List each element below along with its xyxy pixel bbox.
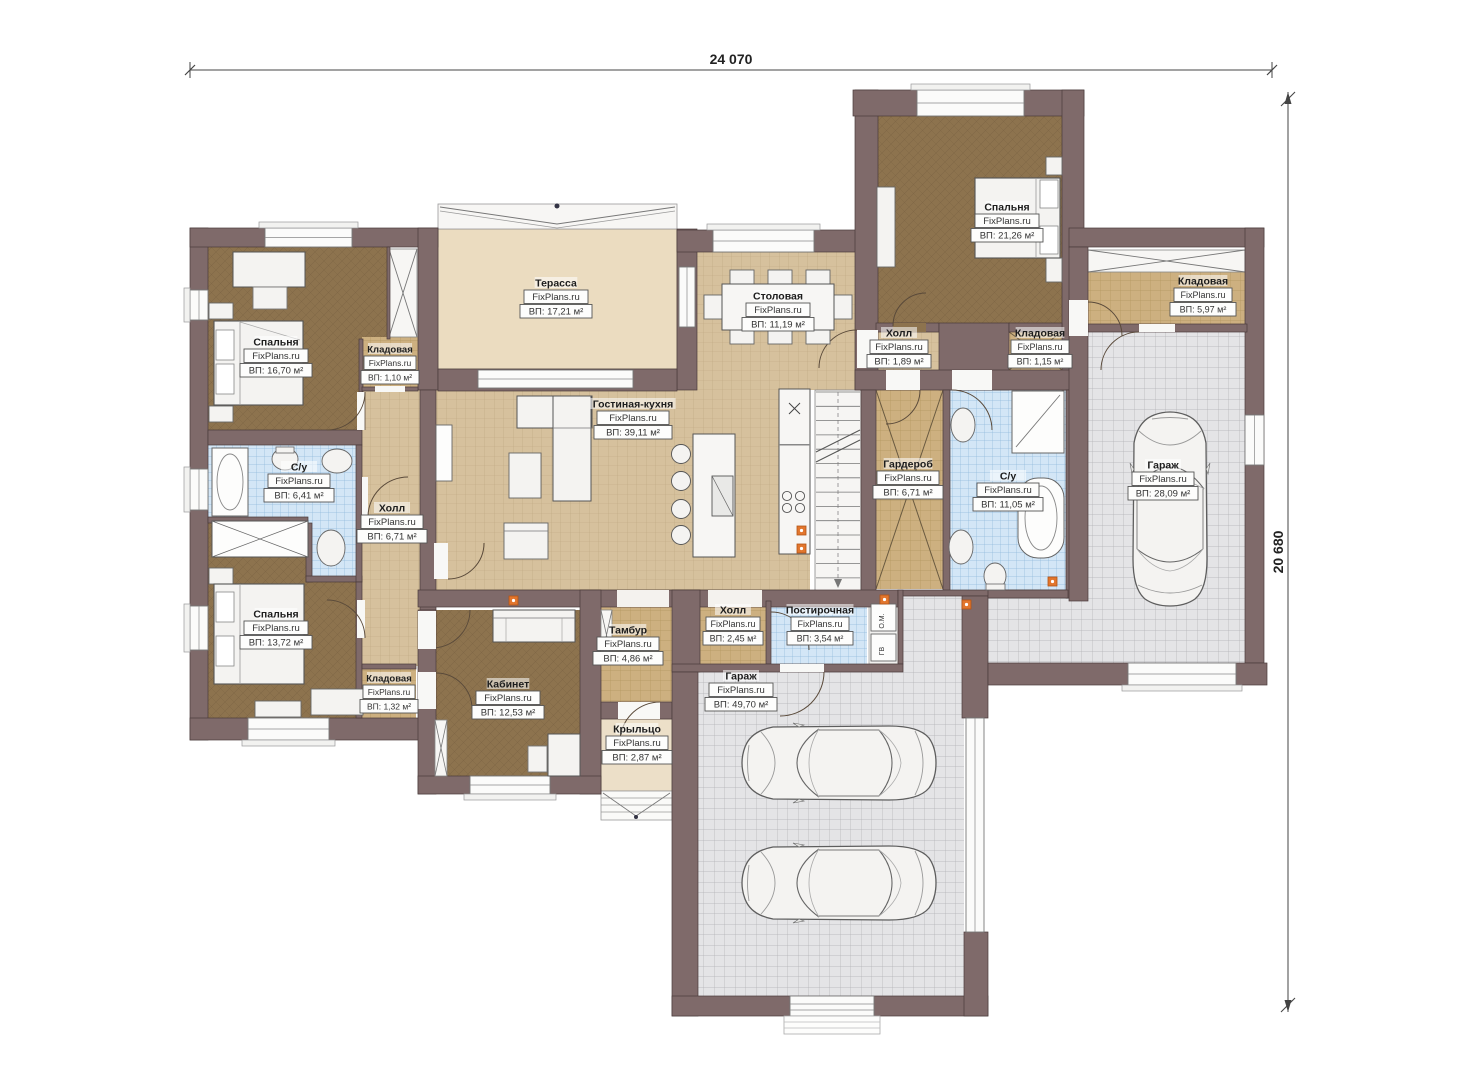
- svg-text:20 680: 20 680: [1270, 530, 1286, 573]
- svg-text:Тамбур: Тамбур: [609, 625, 647, 637]
- svg-text:Крыльцо: Крыльцо: [613, 724, 661, 736]
- svg-text:Холл: Холл: [379, 503, 405, 515]
- svg-text:ВП: 1,10 м²: ВП: 1,10 м²: [368, 373, 412, 383]
- svg-text:FixPlans.ru: FixPlans.ru: [983, 216, 1031, 227]
- svg-text:FixPlans.ru: FixPlans.ru: [710, 619, 755, 629]
- svg-text:Спальня: Спальня: [253, 609, 298, 621]
- svg-text:Кладовая: Кладовая: [367, 345, 413, 356]
- svg-text:С/у: С/у: [1000, 471, 1017, 483]
- svg-text:ВП: 5,97 м²: ВП: 5,97 м²: [1180, 305, 1227, 315]
- svg-text:ВП: 39,11 м²: ВП: 39,11 м²: [606, 428, 660, 439]
- svg-text:FixPlans.ru: FixPlans.ru: [275, 476, 323, 487]
- svg-text:FixPlans.ru: FixPlans.ru: [532, 292, 580, 303]
- svg-text:Холл: Холл: [886, 328, 912, 340]
- svg-text:FixPlans.ru: FixPlans.ru: [484, 693, 532, 704]
- svg-text:ВП: 6,71 м²: ВП: 6,71 м²: [367, 532, 416, 543]
- svg-text:ВП: 1,32 м²: ВП: 1,32 м²: [367, 702, 411, 712]
- svg-text:ВП: 2,45 м²: ВП: 2,45 м²: [710, 634, 757, 644]
- svg-text:Спальня: Спальня: [984, 202, 1029, 214]
- svg-text:ВП: 6,71 м²: ВП: 6,71 м²: [883, 488, 932, 499]
- svg-text:Гараж: Гараж: [725, 671, 757, 683]
- svg-text:Кладовая: Кладовая: [1015, 328, 1065, 340]
- svg-text:ВП: 13,72 м²: ВП: 13,72 м²: [249, 638, 304, 649]
- svg-text:ВП: 1,89 м²: ВП: 1,89 м²: [874, 357, 923, 368]
- svg-text:ВП: 28,09 м²: ВП: 28,09 м²: [1136, 489, 1191, 500]
- svg-text:FixPlans.ru: FixPlans.ru: [1017, 342, 1062, 352]
- svg-text:ГВ: ГВ: [879, 646, 886, 655]
- svg-text:Столовая: Столовая: [753, 291, 803, 303]
- svg-text:FixPlans.ru: FixPlans.ru: [717, 685, 765, 696]
- svg-text:Постирочная: Постирочная: [786, 605, 854, 617]
- svg-text:Гостиная-кухня: Гостиная-кухня: [593, 399, 673, 411]
- svg-text:FixPlans.ru: FixPlans.ru: [252, 623, 300, 634]
- svg-text:ВП: 4,86 м²: ВП: 4,86 м²: [603, 654, 652, 665]
- svg-text:Кладовая: Кладовая: [366, 674, 412, 685]
- svg-text:ВП: 17,21 м²: ВП: 17,21 м²: [529, 307, 584, 318]
- svg-text:FixPlans.ru: FixPlans.ru: [368, 517, 416, 528]
- svg-text:FixPlans.ru: FixPlans.ru: [875, 342, 923, 353]
- svg-text:ВП: 1,15 м²: ВП: 1,15 м²: [1017, 357, 1064, 367]
- svg-text:Гараж: Гараж: [1147, 460, 1179, 472]
- svg-text:FixPlans.ru: FixPlans.ru: [604, 639, 652, 650]
- svg-text:ВП: 49,70 м²: ВП: 49,70 м²: [714, 700, 769, 711]
- svg-text:С/у: С/у: [291, 462, 308, 474]
- svg-text:FixPlans.ru: FixPlans.ru: [884, 473, 932, 484]
- svg-text:FixPlans.ru: FixPlans.ru: [1180, 290, 1225, 300]
- svg-text:Гардероб: Гардероб: [883, 459, 933, 471]
- svg-text:FixPlans.ru: FixPlans.ru: [613, 738, 661, 749]
- svg-text:ВП: 16,70 м²: ВП: 16,70 м²: [249, 366, 304, 377]
- svg-text:FixPlans.ru: FixPlans.ru: [368, 687, 411, 697]
- svg-text:Холл: Холл: [720, 605, 746, 617]
- svg-text:ВП: 11,19 м²: ВП: 11,19 м²: [751, 320, 805, 331]
- svg-text:FixPlans.ru: FixPlans.ru: [369, 358, 412, 368]
- svg-text:FixPlans.ru: FixPlans.ru: [797, 619, 842, 629]
- svg-text:Кабинет: Кабинет: [487, 679, 530, 691]
- svg-text:FixPlans.ru: FixPlans.ru: [754, 305, 802, 316]
- svg-text:ВП: 3,54 м²: ВП: 3,54 м²: [797, 634, 844, 644]
- svg-text:ВП: 21,26 м²: ВП: 21,26 м²: [980, 231, 1035, 242]
- svg-text:24 070: 24 070: [710, 51, 753, 67]
- svg-text:О.М.: О.М.: [879, 613, 886, 628]
- svg-text:ВП: 6,41 м²: ВП: 6,41 м²: [274, 491, 323, 502]
- svg-text:FixPlans.ru: FixPlans.ru: [609, 413, 657, 424]
- svg-text:ВП: 2,87 м²: ВП: 2,87 м²: [612, 753, 661, 764]
- svg-text:ВП: 12,53 м²: ВП: 12,53 м²: [481, 708, 536, 719]
- svg-text:FixPlans.ru: FixPlans.ru: [1139, 474, 1187, 485]
- svg-text:FixPlans.ru: FixPlans.ru: [252, 351, 300, 362]
- svg-text:Кладовая: Кладовая: [1178, 276, 1228, 288]
- svg-text:Терасса: Терасса: [535, 278, 577, 290]
- svg-text:Спальня: Спальня: [253, 337, 298, 349]
- svg-text:FixPlans.ru: FixPlans.ru: [984, 485, 1032, 496]
- svg-text:ВП: 11,05 м²: ВП: 11,05 м²: [981, 500, 1035, 511]
